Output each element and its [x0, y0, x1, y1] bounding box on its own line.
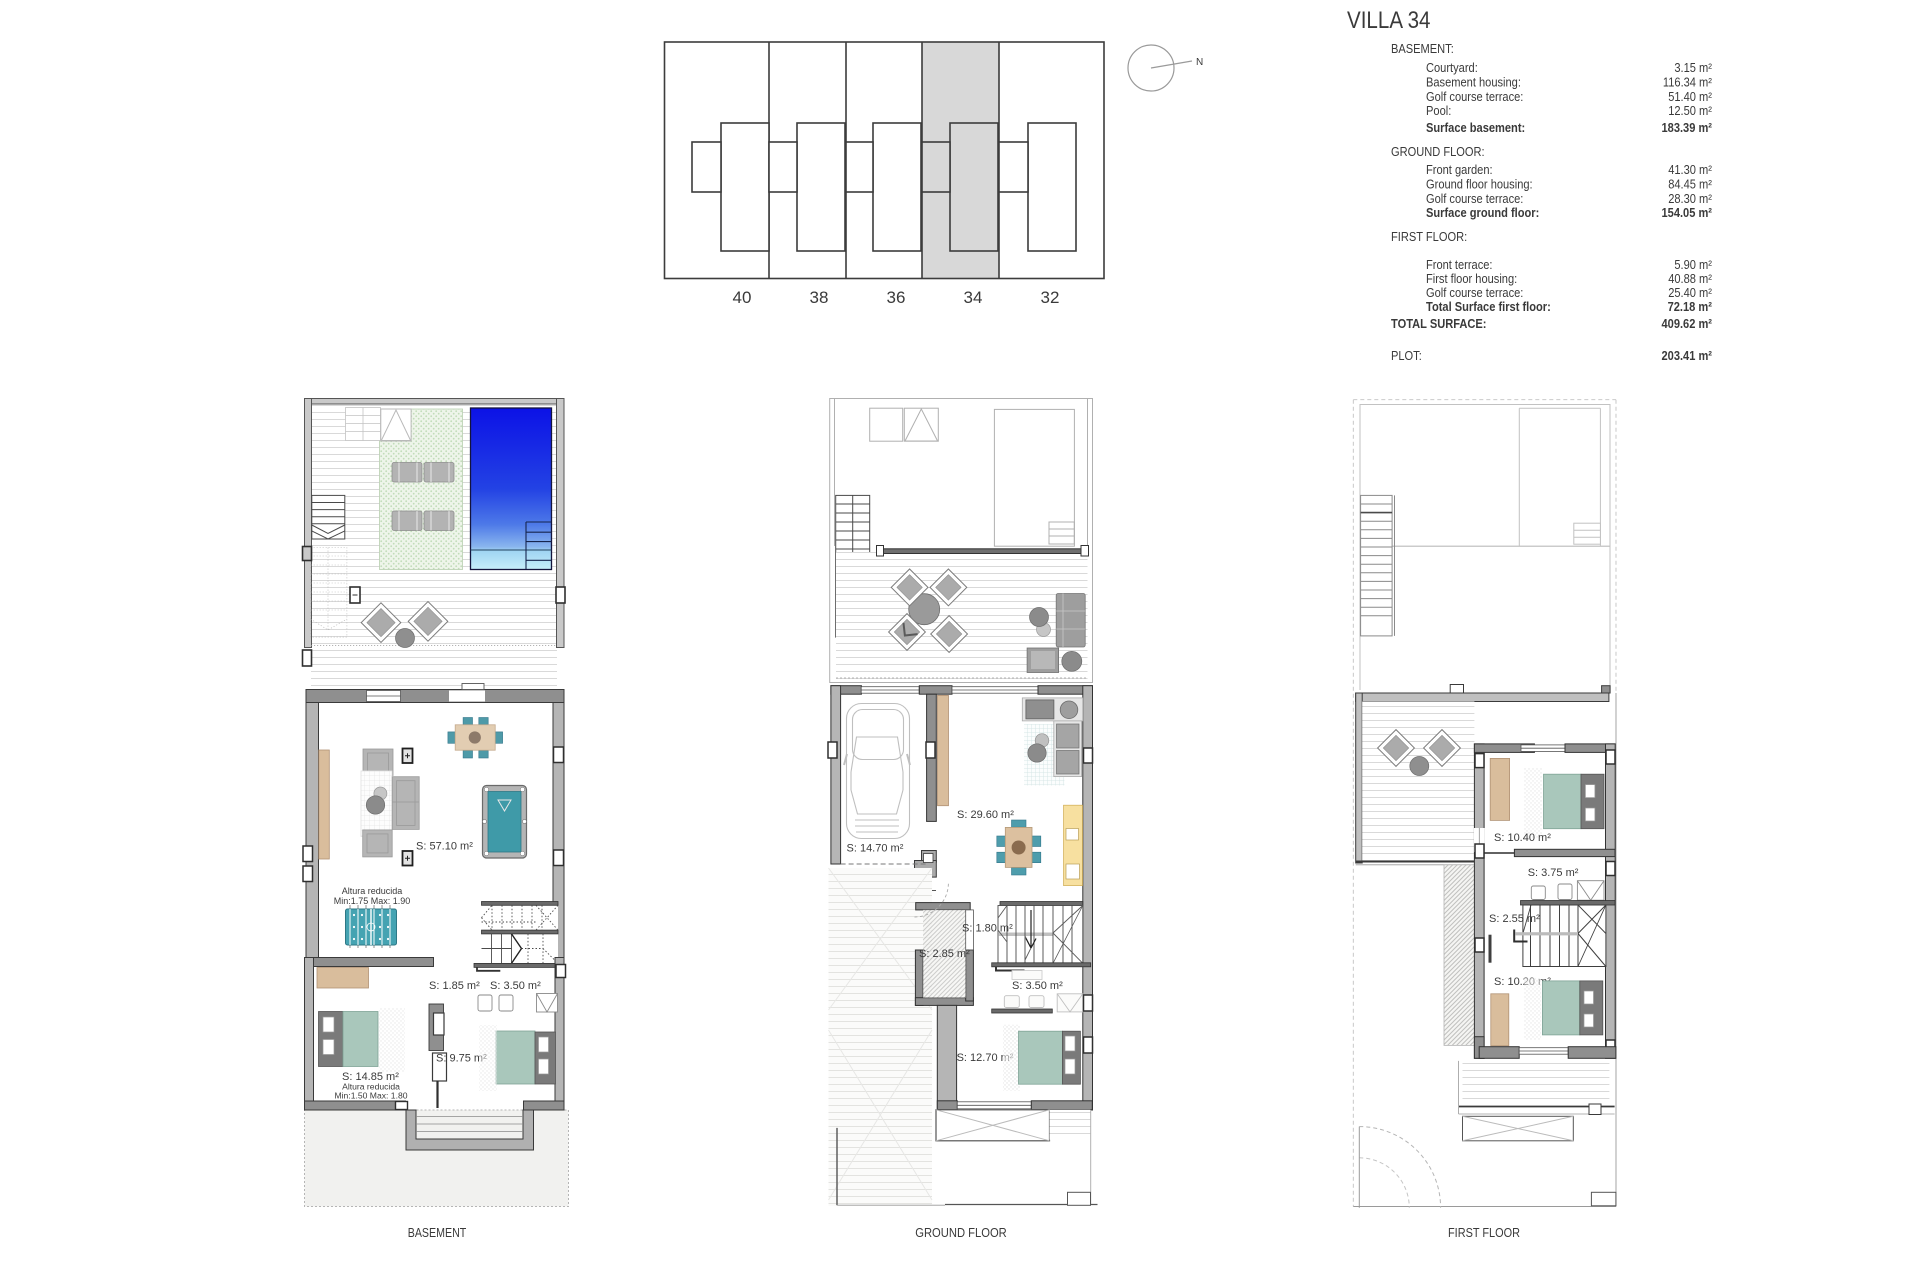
svg-text:72.18 m²: 72.18 m² — [1668, 299, 1713, 314]
svg-text:VILLA 34: VILLA 34 — [1347, 7, 1431, 34]
svg-text:Pool:: Pool: — [1426, 103, 1451, 118]
svg-text:51.40 m²: 51.40 m² — [1668, 89, 1712, 104]
svg-text:3.15 m²: 3.15 m² — [1674, 60, 1712, 75]
svg-text:N: N — [1196, 57, 1203, 68]
svg-text:Min:1.50 Max: 1.80: Min:1.50 Max: 1.80 — [334, 1091, 407, 1101]
svg-text:25.40 m²: 25.40 m² — [1668, 285, 1712, 300]
svg-text:Golf course terrace:: Golf course terrace: — [1426, 191, 1523, 206]
svg-text:Front garden:: Front garden: — [1426, 162, 1493, 177]
svg-text:Altura reducida: Altura reducida — [342, 886, 403, 896]
svg-text:First floor housing:: First floor housing: — [1426, 271, 1517, 286]
svg-text:38: 38 — [810, 288, 829, 307]
svg-text:36: 36 — [887, 288, 906, 307]
svg-text:84.45 m²: 84.45 m² — [1668, 177, 1712, 192]
svg-text:S: 3.50 m²: S: 3.50 m² — [1012, 980, 1063, 992]
svg-text:41.30 m²: 41.30 m² — [1668, 162, 1712, 177]
svg-text:PLOT:: PLOT: — [1391, 348, 1422, 363]
svg-text:S: 10.40 m²: S: 10.40 m² — [1494, 832, 1551, 844]
svg-text:Ground floor housing:: Ground floor housing: — [1426, 177, 1533, 192]
svg-text:Golf course terrace:: Golf course terrace: — [1426, 285, 1523, 300]
svg-text:Front terrace:: Front terrace: — [1426, 257, 1493, 272]
svg-text:S: 2.85 m²: S: 2.85 m² — [919, 948, 970, 960]
svg-text:409.62 m²: 409.62 m² — [1662, 316, 1713, 331]
svg-text:TOTAL SURFACE:: TOTAL SURFACE: — [1391, 316, 1487, 331]
svg-text:BASEMENT:: BASEMENT: — [1391, 41, 1454, 56]
svg-text:Total Surface first floor:: Total Surface first floor: — [1426, 299, 1551, 314]
svg-text:S: 1.85 m²: S: 1.85 m² — [429, 980, 480, 992]
svg-text:Surface ground floor:: Surface ground floor: — [1426, 205, 1539, 220]
svg-text:Min:1.75 Max: 1.90: Min:1.75 Max: 1.90 — [334, 896, 411, 906]
svg-text:28.30 m²: 28.30 m² — [1668, 191, 1712, 206]
svg-text:GROUND FLOOR:: GROUND FLOOR: — [1391, 144, 1485, 159]
svg-text:Basement housing:: Basement housing: — [1426, 75, 1521, 90]
svg-text:S: 2.55 m²: S: 2.55 m² — [1489, 913, 1540, 925]
svg-text:S: 3.75 m²: S: 3.75 m² — [1528, 867, 1579, 879]
svg-text:Courtyard:: Courtyard: — [1426, 60, 1478, 75]
svg-text:Golf course terrace:: Golf course terrace: — [1426, 89, 1523, 104]
svg-text:40: 40 — [733, 288, 752, 307]
svg-text:FIRST FLOOR:: FIRST FLOOR: — [1391, 229, 1467, 244]
svg-text:S: 29.60 m²: S: 29.60 m² — [957, 809, 1014, 821]
svg-text:12.50 m²: 12.50 m² — [1668, 103, 1712, 118]
svg-text:S: 1.80 m²: S: 1.80 m² — [962, 923, 1013, 935]
svg-text:5.90 m²: 5.90 m² — [1674, 257, 1712, 272]
svg-text:GROUND FLOOR: GROUND FLOOR — [915, 1225, 1007, 1240]
svg-text:154.05 m²: 154.05 m² — [1662, 205, 1713, 220]
svg-text:BASEMENT: BASEMENT — [408, 1225, 467, 1240]
svg-text:183.39 m²: 183.39 m² — [1662, 120, 1713, 135]
svg-text:116.34 m²: 116.34 m² — [1663, 75, 1713, 90]
svg-text:S: 3.50 m²: S: 3.50 m² — [490, 980, 541, 992]
svg-text:FIRST FLOOR: FIRST FLOOR — [1448, 1225, 1520, 1240]
svg-text:203.41 m²: 203.41 m² — [1662, 348, 1713, 363]
svg-text:34: 34 — [964, 288, 983, 307]
svg-text:32: 32 — [1041, 288, 1060, 307]
svg-text:Surface basement:: Surface basement: — [1426, 120, 1525, 135]
svg-text:40.88 m²: 40.88 m² — [1668, 271, 1712, 286]
svg-text:S: 57.10 m²: S: 57.10 m² — [416, 841, 473, 853]
svg-text:S: 14.70 m²: S: 14.70 m² — [847, 843, 904, 855]
